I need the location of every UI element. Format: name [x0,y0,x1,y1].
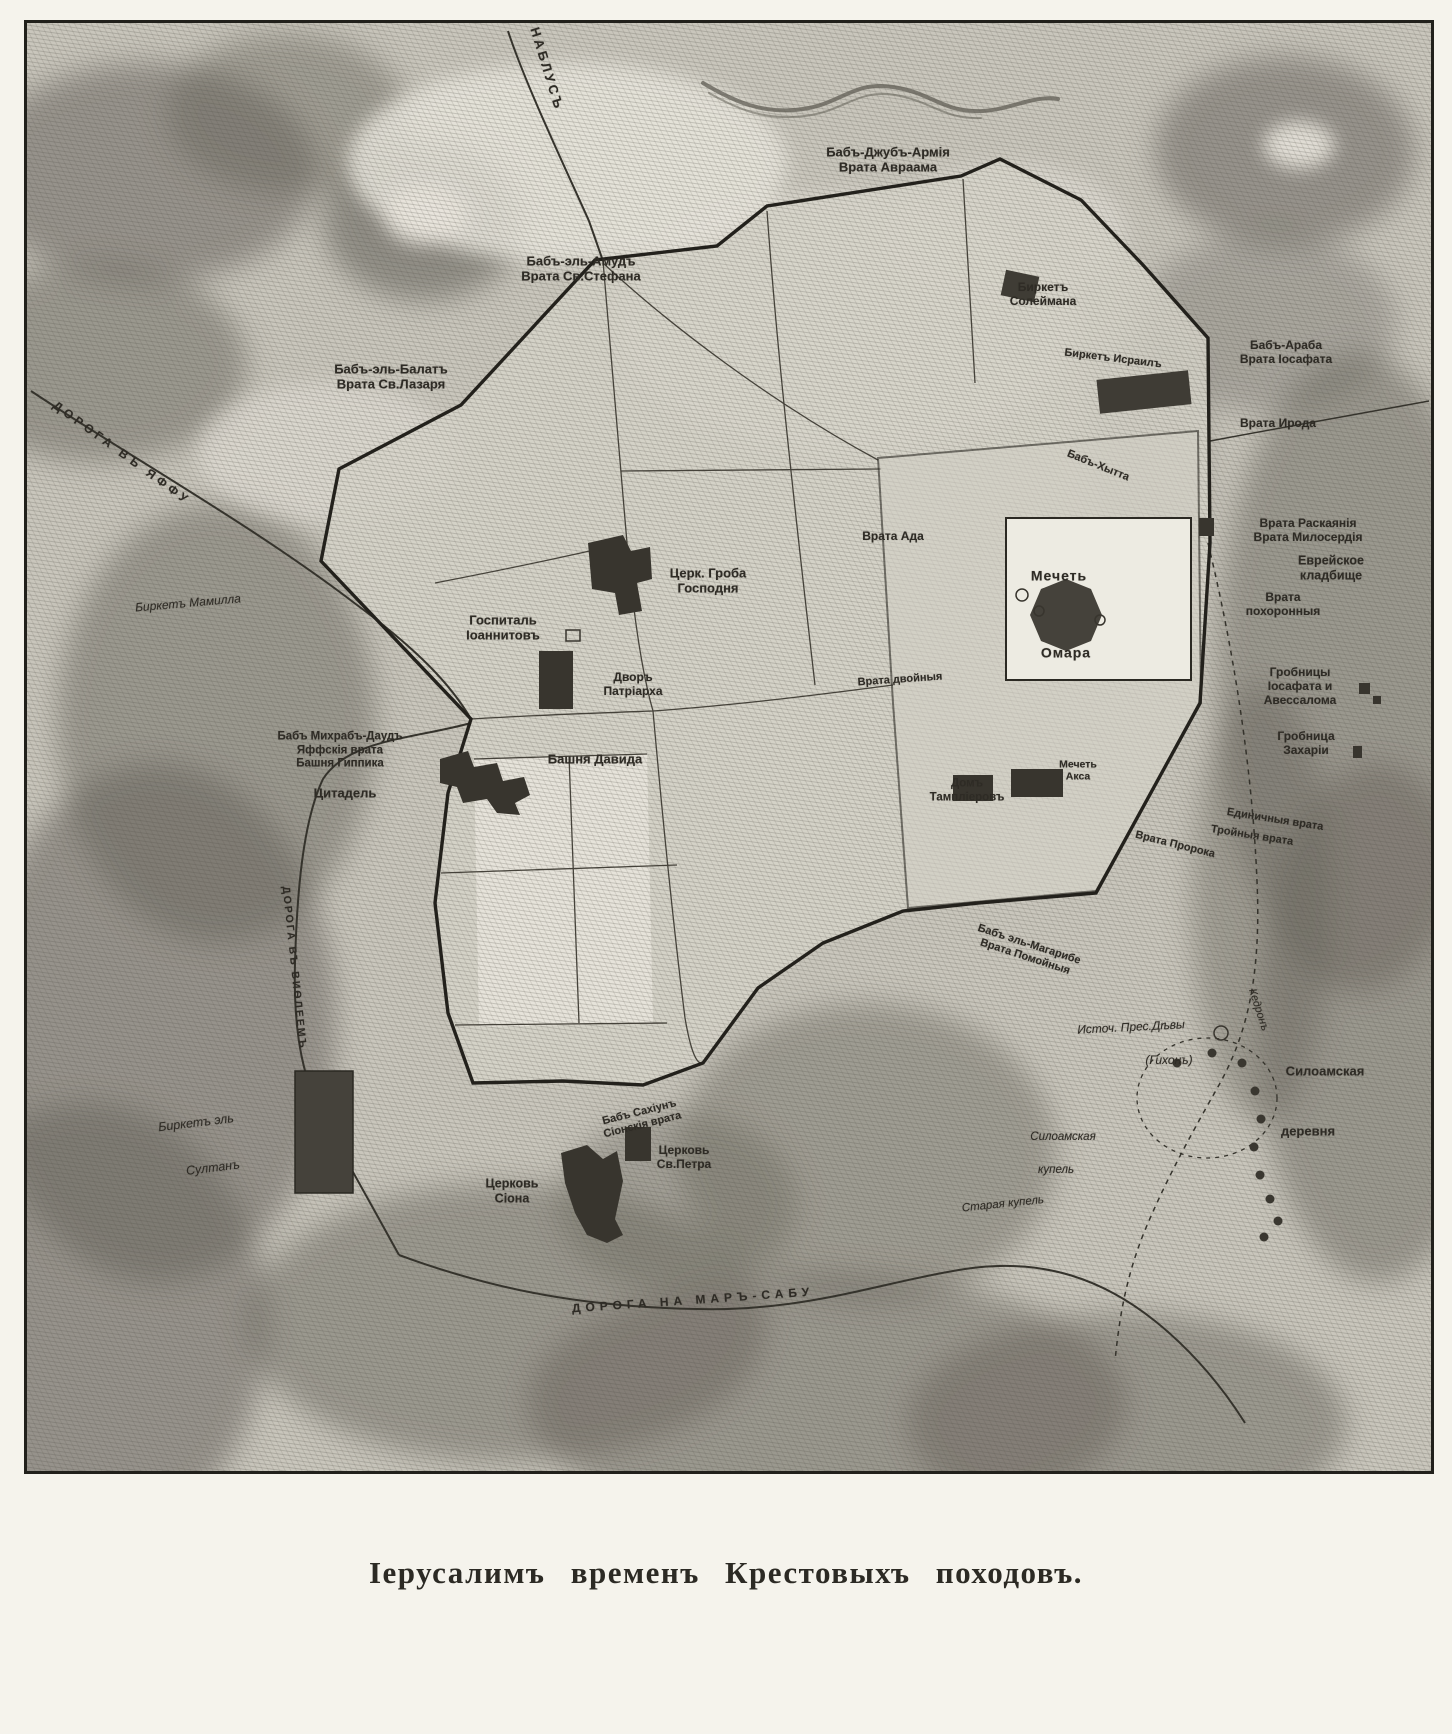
tomb-zechariah: ГробницаЗахаріи [1277,729,1334,757]
road-jaffa-label: ДОРОГА ВЪ ЯФФУ [50,398,193,508]
pool-mamilla: Биркетъ Мамилла [135,591,242,614]
gate-funeral: Вратапохоронныя [1246,590,1320,618]
mosque-aqsa: МечетьАкса [1059,759,1097,784]
spring-virgin: Источ. Прес.Дѣвы [1077,1017,1185,1037]
spring-gihon: (Гихонъ) [1145,1053,1192,1067]
gate-st-stephen: Бабъ-эль-АмудъВрата Св.Стефана [521,254,640,285]
map-plate: НАБЛУСЪБабъ-Джубъ-АрміяВрата АвраамаБабъ… [24,20,1434,1474]
map-labels: НАБЛУСЪБабъ-Джубъ-АрміяВрата АвраамаБабъ… [27,23,1431,1471]
mosque-omar-line1: Мечеть [1031,568,1087,585]
old-pool: Старая купель [961,1194,1044,1216]
gate-hytta: Бабъ-Хытта [1065,448,1131,485]
gate-zion: Бабъ СахіунъСіонскія врата [599,1097,683,1141]
church-st-peter: ЦерковьСв.Петра [657,1143,711,1171]
jaffa-gate: Бабъ Михрабъ-ДаудъЯффскія вратаБашня Гип… [277,731,402,772]
pool-israil: Биркетъ Исраилъ [1064,347,1163,372]
gate-prophet: Врата Пророка [1134,829,1216,861]
tower-of-david: Башня Давида [548,751,642,766]
kidron-valley: Кедронъ [1245,987,1271,1033]
templars-house: ДомъТампліеровъ [930,777,1005,804]
siloam-pool-line2: купель [1038,1164,1074,1178]
siloam-village-line1: Силоамская [1286,1063,1365,1078]
road-bethlehem-label: ДОРОГА ВЪ ВИѲЛЕЕМЪ [279,886,308,1051]
church-zion: ЦерковьСіона [486,1176,539,1206]
citadel: Цитадель [314,785,377,800]
gate-herod: Врата Ирода [1240,416,1316,430]
gate-dung: Бабъ эль-МагарибеВрата Помойныя [972,922,1082,980]
road-marsaba-label: ДОРОГА НА МАРЪ-САБУ [571,1284,814,1315]
siloam-pool-line1: Силоамская [1030,1131,1095,1145]
tombs-jehoshaphat-absalom: ГробницыІосафата иАвессалома [1264,665,1337,707]
siloam-village-line2: деревня [1281,1123,1335,1138]
gate-double: Врата двойныя [857,671,943,690]
mosque-omar-line2: Омара [1041,645,1091,662]
road-nablus-label: НАБЛУСЪ [527,25,567,112]
pool-sultan-line2: Султанъ [185,1157,240,1178]
gate-st-lazarus: Бабъ-эль-БалатъВрата Св.Лазаря [334,362,448,393]
patriarch-court: ДворъПатріарха [603,670,662,698]
gate-jehoshaphat: Бабъ-АрабаВрата Іосафата [1240,338,1332,366]
hospital-johannites: ГоспитальІоаннитовъ [466,613,540,644]
map-caption: Іерусалимъ временъ Крестовыхъ походовъ. [0,1555,1452,1591]
pool-suleiman: БиркетъСолеймана [1010,280,1077,308]
gate-repentance-mercy: Врата РаскаяніяВрата Милосердія [1254,516,1363,544]
jewish-cemetery: Еврейскоекладбище [1298,553,1364,583]
gate-abraham: Бабъ-Джубъ-АрміяВрата Авраама [826,145,950,176]
pool-sultan-line1: Биркетъ эль [157,1111,234,1135]
gate-hell: Врата Ада [862,529,924,543]
church-holy-sepulchre: Церк. ГробаГосподня [670,566,747,597]
